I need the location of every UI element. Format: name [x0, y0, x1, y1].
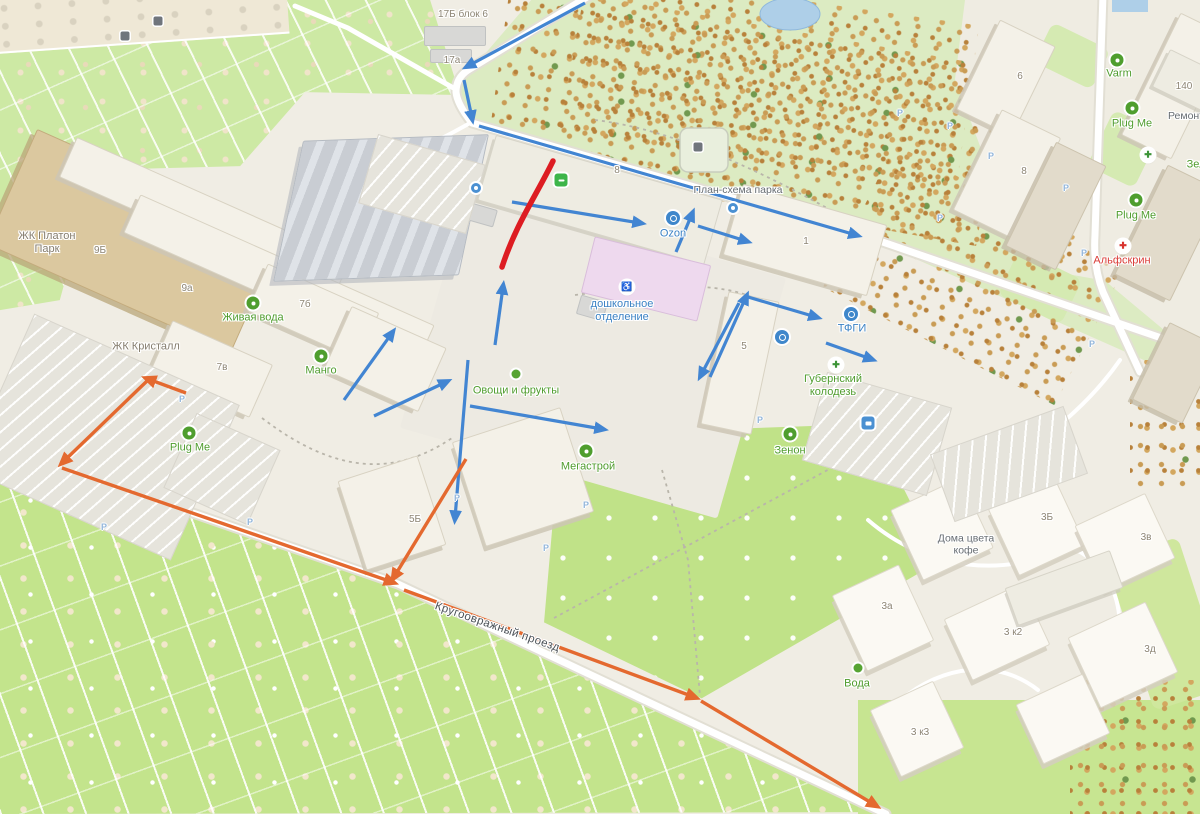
label-num-17b-blok6[interactable]: 17Б блок 6: [438, 9, 488, 21]
label-num-140[interactable]: 140: [1176, 81, 1193, 93]
voda-icon[interactable]: [854, 664, 863, 673]
building-right-3[interactable]: [1114, 165, 1200, 302]
parking-icon[interactable]: P: [897, 108, 903, 118]
building-17b-1[interactable]: [424, 26, 486, 46]
label-zhk-platon-park[interactable]: ЖК Платон Парк: [19, 230, 76, 256]
parking-icon[interactable]: P: [101, 522, 107, 532]
label-road-num-8[interactable]: 8: [614, 165, 620, 177]
parking-icon[interactable]: P: [247, 517, 253, 527]
container2-icon[interactable]: [154, 17, 163, 26]
label-num-3b[interactable]: 3Б: [1041, 512, 1053, 524]
parking-icon[interactable]: P: [1081, 248, 1087, 258]
info-icon[interactable]: [775, 330, 789, 344]
road: [295, 6, 457, 90]
tfgi-icon[interactable]: [844, 307, 858, 321]
parking-icon[interactable]: P: [1089, 339, 1095, 349]
pond-small: [1112, 0, 1148, 12]
label-poi-alfskrin[interactable]: Альфскрин: [1093, 255, 1150, 268]
label-poi-plug-me-right-upper[interactable]: Plug Me: [1112, 118, 1152, 131]
label-poi-voda[interactable]: Вода: [844, 678, 870, 691]
label-num-8[interactable]: 8: [1021, 166, 1027, 178]
label-poi-plug-me-left[interactable]: Plug Me: [170, 442, 210, 455]
parking-icon[interactable]: P: [1063, 183, 1069, 193]
pond: [760, 0, 820, 30]
parking-icon[interactable]: P: [757, 415, 763, 425]
label-num-5[interactable]: 5: [741, 341, 747, 353]
alfskrin-icon[interactable]: ✚: [1117, 240, 1130, 253]
route-arrow-blue: [826, 343, 871, 359]
label-num-3a[interactable]: 3а: [881, 601, 892, 613]
parking-icon[interactable]: P: [937, 213, 943, 223]
label-poi-plan-schema-parka[interactable]: План-схема парка: [693, 184, 782, 196]
building-3a[interactable]: [832, 564, 935, 671]
varm-icon[interactable]: [1111, 54, 1124, 67]
label-num-3k3[interactable]: 3 к3: [911, 727, 929, 739]
zhivaya-voda-icon[interactable]: [247, 297, 260, 310]
label-num-5b[interactable]: 5Б: [409, 514, 421, 526]
label-poi-zel[interactable]: Зел: [1187, 159, 1200, 172]
label-poi-mango[interactable]: Манго: [305, 365, 336, 378]
parking-icon[interactable]: P: [947, 121, 953, 131]
label-num-9a[interactable]: 9а: [181, 283, 192, 295]
label-street-krugoovrazhny[interactable]: Кругоовражный проезд: [433, 600, 561, 656]
label-num-7v[interactable]: 7в: [217, 362, 228, 374]
building-right-4[interactable]: [1132, 322, 1200, 424]
container-icon[interactable]: [121, 32, 130, 41]
parking-icon[interactable]: P: [454, 493, 460, 503]
plug-me-left-icon[interactable]: [183, 427, 196, 440]
dog-park-icon[interactable]: [694, 143, 703, 152]
pyaterochka-icon[interactable]: [555, 174, 568, 187]
plug-me-right-upper-icon[interactable]: [1126, 102, 1139, 115]
label-num-7b[interactable]: 7б: [299, 299, 310, 311]
label-poi-doshkolnoe[interactable]: дошкольное отделение: [591, 298, 654, 324]
ovoshchi-frukty-icon[interactable]: [512, 370, 521, 379]
label-poi-doma-tsveta-kofe[interactable]: Дома цвета кофе: [938, 533, 995, 558]
label-poi-varm[interactable]: Varm: [1106, 68, 1131, 81]
footpath: [662, 470, 700, 696]
footpath: [262, 418, 452, 464]
kiosk-icon[interactable]: [862, 417, 875, 430]
parking-icon[interactable]: P: [179, 394, 185, 404]
label-poi-zenon[interactable]: Зенон: [774, 445, 805, 458]
label-num-3d[interactable]: 3д: [1144, 644, 1155, 656]
stop-dot-icon[interactable]: [471, 183, 481, 193]
label-num-3v[interactable]: 3в: [1141, 532, 1152, 544]
label-zhk-kristall[interactable]: ЖК Кристалл: [112, 341, 180, 354]
label-poi-remont[interactable]: Ремонт: [1168, 110, 1200, 122]
label-poi-gubernsky-kolodez[interactable]: Губернский колодезь: [804, 373, 862, 399]
building-megastroy-bld[interactable]: [452, 407, 594, 547]
gubernsky-kolodez-icon[interactable]: ✚: [830, 359, 843, 372]
label-poi-megastroy[interactable]: Мегастрой: [561, 461, 615, 474]
megastroy-icon[interactable]: [580, 445, 593, 458]
label-poi-plug-me-right-lower[interactable]: Plug Me: [1116, 210, 1156, 223]
label-poi-zhivaya-voda[interactable]: Живая вода: [222, 312, 283, 325]
route-arrow-blue: [464, 80, 472, 118]
map-canvas[interactable]: ✚✚✚♿PPPPPPPPPPPPPPЖК Платон ПаркЖК Крист…: [0, 0, 1200, 814]
label-num-6[interactable]: 6: [1017, 71, 1023, 83]
mango-icon[interactable]: [315, 350, 328, 363]
pharmacy-cross-icon[interactable]: ✚: [1142, 149, 1155, 162]
road-dot-icon[interactable]: [728, 203, 738, 213]
wheelchair-icon[interactable]: ♿: [621, 281, 634, 294]
label-poi-ozon[interactable]: Ozon: [660, 228, 686, 241]
dog-park-enclosure: [680, 128, 728, 172]
zenon-icon[interactable]: [784, 428, 797, 441]
label-num-9b[interactable]: 9Б: [94, 245, 106, 257]
route-arrow-blue: [495, 287, 503, 345]
plug-me-right-lower-icon[interactable]: [1130, 194, 1143, 207]
ozon-icon[interactable]: [666, 211, 680, 225]
north-houses-strip: [0, 0, 290, 54]
label-num-17a[interactable]: 17а: [444, 55, 461, 67]
parking-icon[interactable]: P: [988, 151, 994, 161]
building-5b[interactable]: [338, 455, 447, 570]
route-arrow-orange: [701, 701, 875, 805]
label-num-3k2[interactable]: 3 к2: [1004, 627, 1022, 639]
label-poi-tfgi[interactable]: ТФГИ: [838, 323, 867, 336]
parking-icon[interactable]: P: [583, 500, 589, 510]
label-num-1[interactable]: 1: [803, 236, 809, 248]
parking-icon[interactable]: P: [543, 543, 549, 553]
building-5[interactable]: [700, 291, 779, 435]
label-poi-ovoshchi-frukty[interactable]: Овощи и фрукты: [473, 385, 559, 398]
